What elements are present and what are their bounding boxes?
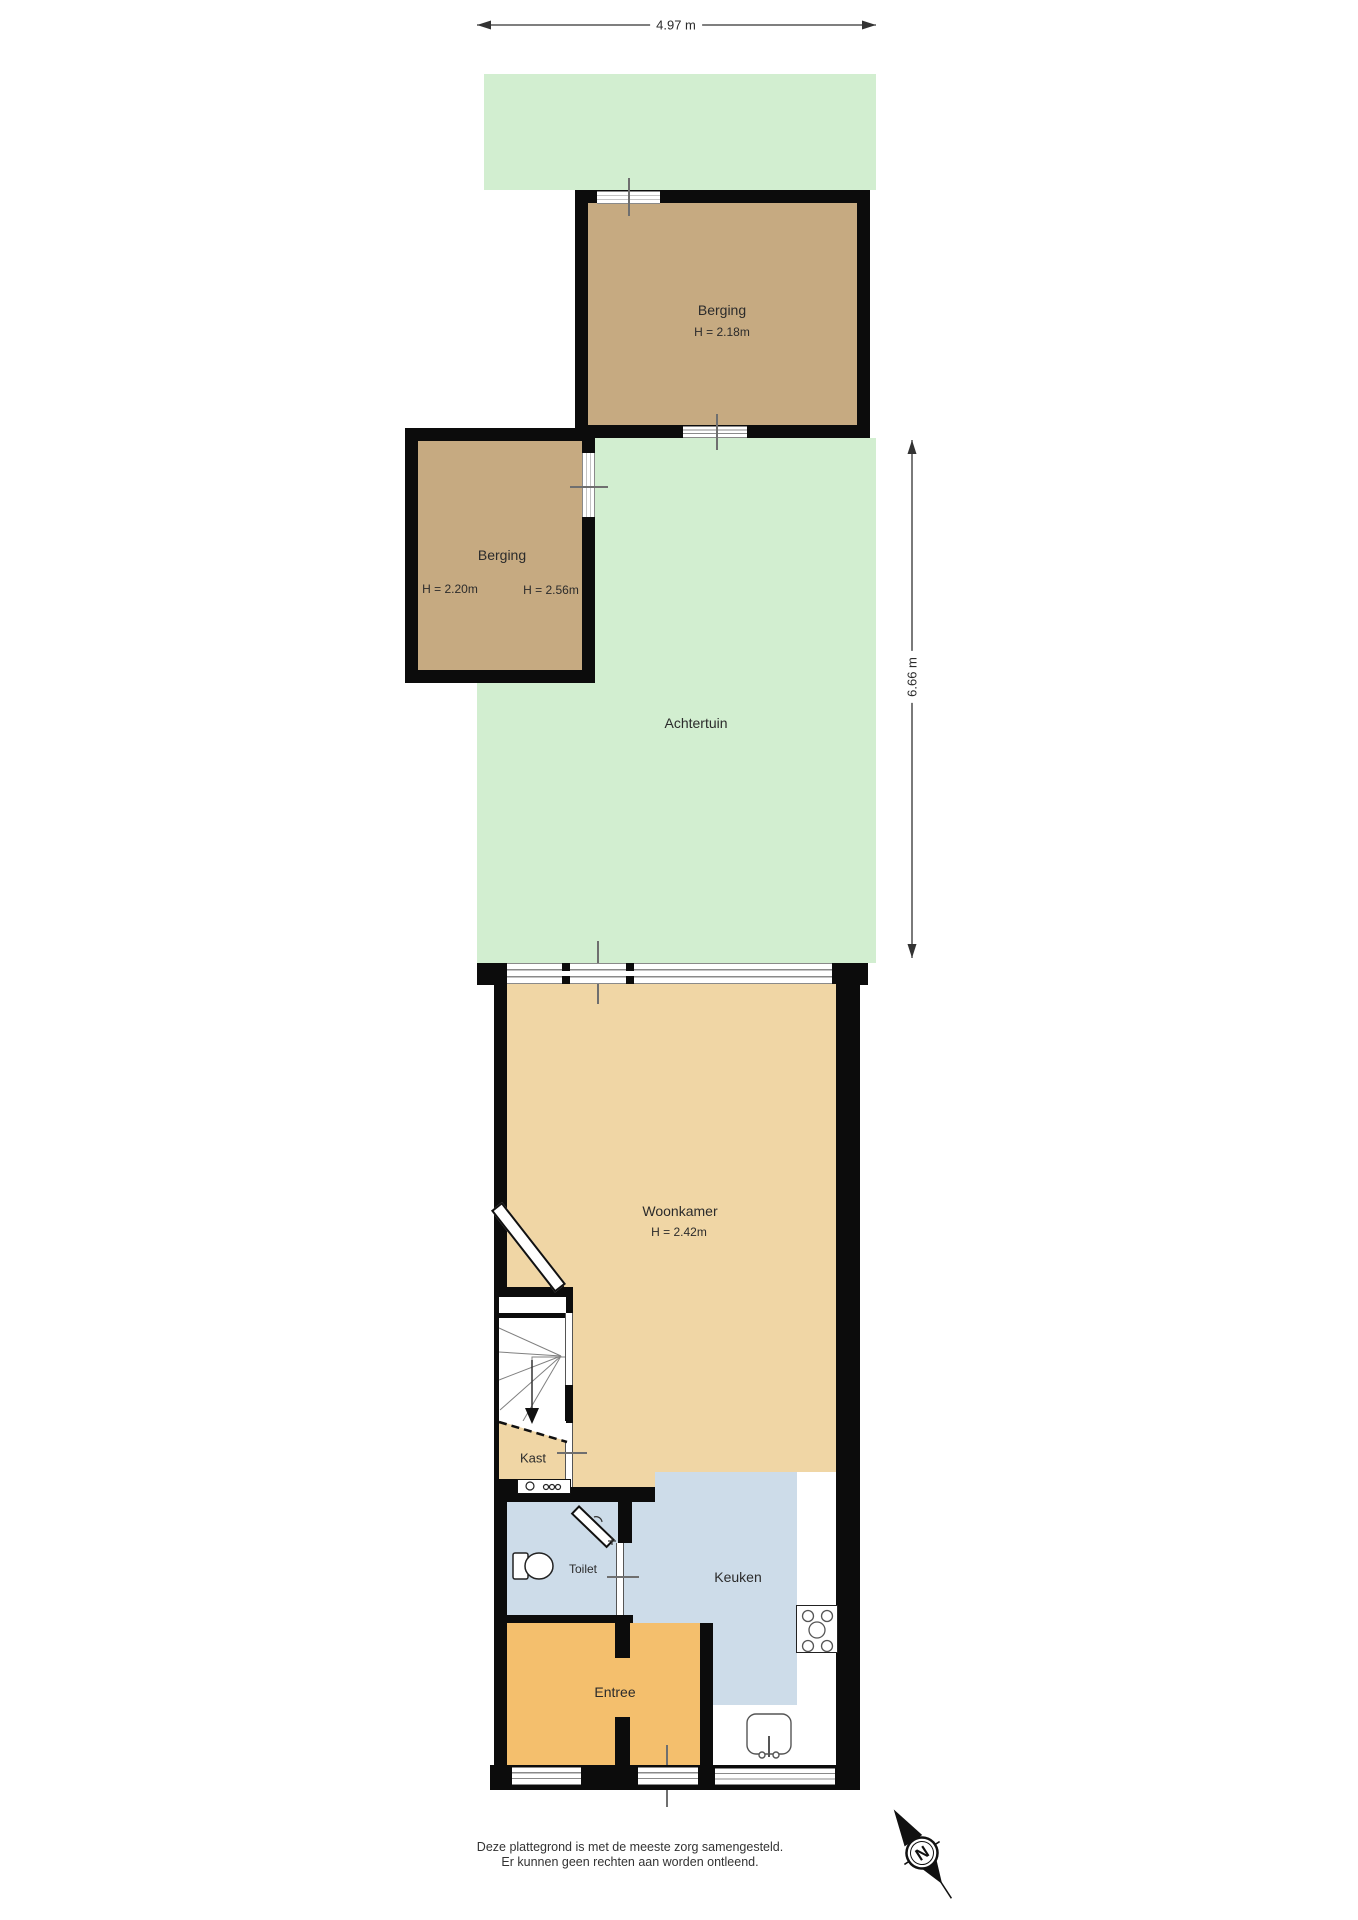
- tick-rear-window-b: [597, 984, 599, 1004]
- house-corner-bottom-left: [490, 1765, 512, 1790]
- achtertuin-label: Achtertuin: [664, 715, 727, 731]
- berging-top-door: [683, 426, 747, 438]
- staircase: [499, 1318, 565, 1421]
- compass-north-label: N: [912, 1842, 933, 1865]
- toilet-floor: [507, 1502, 618, 1615]
- house-corner-top-left: [477, 963, 507, 985]
- tick-front-door-a: [666, 1745, 668, 1765]
- disclaimer: Deze plattegrond is met de meeste zorg s…: [477, 1840, 783, 1870]
- rear-window-mullion-2: [626, 963, 634, 984]
- tick-rear-window-a: [597, 941, 599, 963]
- keuken-floor-2: [632, 1502, 797, 1543]
- kast-label: Kast: [520, 1451, 546, 1466]
- toilet-keuken-partition: [616, 1543, 624, 1615]
- keuken-front-window: [715, 1768, 835, 1785]
- tick-berging-top-door: [716, 414, 718, 450]
- toilet-label: Toilet: [569, 1562, 597, 1576]
- tick-toilet-partition: [607, 1576, 639, 1578]
- toilet-keuken-wall-stub: [618, 1502, 632, 1543]
- disclaimer-line-2: Er kunnen geen rechten aan worden ontlee…: [477, 1855, 783, 1870]
- rear-window-mullion-1: [562, 963, 570, 984]
- tick-berging-top-window: [628, 178, 630, 216]
- disclaimer-line-1: Deze plattegrond is met de meeste zorg s…: [477, 1840, 783, 1855]
- berging-top-label: Berging: [698, 302, 746, 318]
- rear-window-band: [507, 963, 832, 984]
- woonkamer-label: Woonkamer: [642, 1203, 717, 1219]
- keuken-floor-1: [655, 1472, 797, 1502]
- berging-left-label: Berging: [478, 547, 526, 563]
- meter-cupboard: [517, 1479, 571, 1494]
- wall-entree-keuken: [700, 1623, 713, 1765]
- berging-left-height-left-label: H = 2.20m: [422, 582, 478, 596]
- tick-berging-left-window: [570, 486, 608, 488]
- keuken-floor-3: [623, 1543, 797, 1615]
- garden-top-strip: [484, 74, 876, 190]
- dimension-depth-label: 6.66 m: [905, 651, 920, 703]
- compass-icon: N: [876, 1798, 969, 1910]
- tick-kast: [557, 1452, 587, 1454]
- entree-wall-stub-top: [615, 1623, 630, 1658]
- tick-front-door-b: [666, 1790, 668, 1807]
- stove: [796, 1605, 838, 1653]
- berging-left-window: [582, 453, 595, 517]
- stair-enclosure-niche: [499, 1297, 566, 1313]
- stair-partition-upper: [565, 1313, 573, 1385]
- front-door: [638, 1767, 698, 1785]
- stair-partition-lower: [565, 1423, 573, 1487]
- woonkamer-height-label: H = 2.42m: [651, 1225, 707, 1239]
- keuken-label: Keuken: [714, 1569, 761, 1585]
- kitchen-sink-counter: [713, 1705, 836, 1765]
- house-corner-top-right: [832, 963, 868, 985]
- berging-top-height-label: H = 2.18m: [694, 325, 750, 339]
- wall-toilet-entree: [494, 1615, 633, 1623]
- garden-upper-band: [595, 438, 876, 683]
- entree-label: Entree: [594, 1684, 635, 1700]
- entree-wall-stub-bottom: [615, 1717, 630, 1765]
- entree-front-window: [512, 1767, 581, 1785]
- berging-left-height-right-label: H = 2.56m: [523, 583, 579, 597]
- floorplan-canvas: N 4.97 m 6.66 m Berging H = 2.18m Bergin…: [0, 0, 1358, 1920]
- dimension-width-label: 4.97 m: [650, 18, 702, 33]
